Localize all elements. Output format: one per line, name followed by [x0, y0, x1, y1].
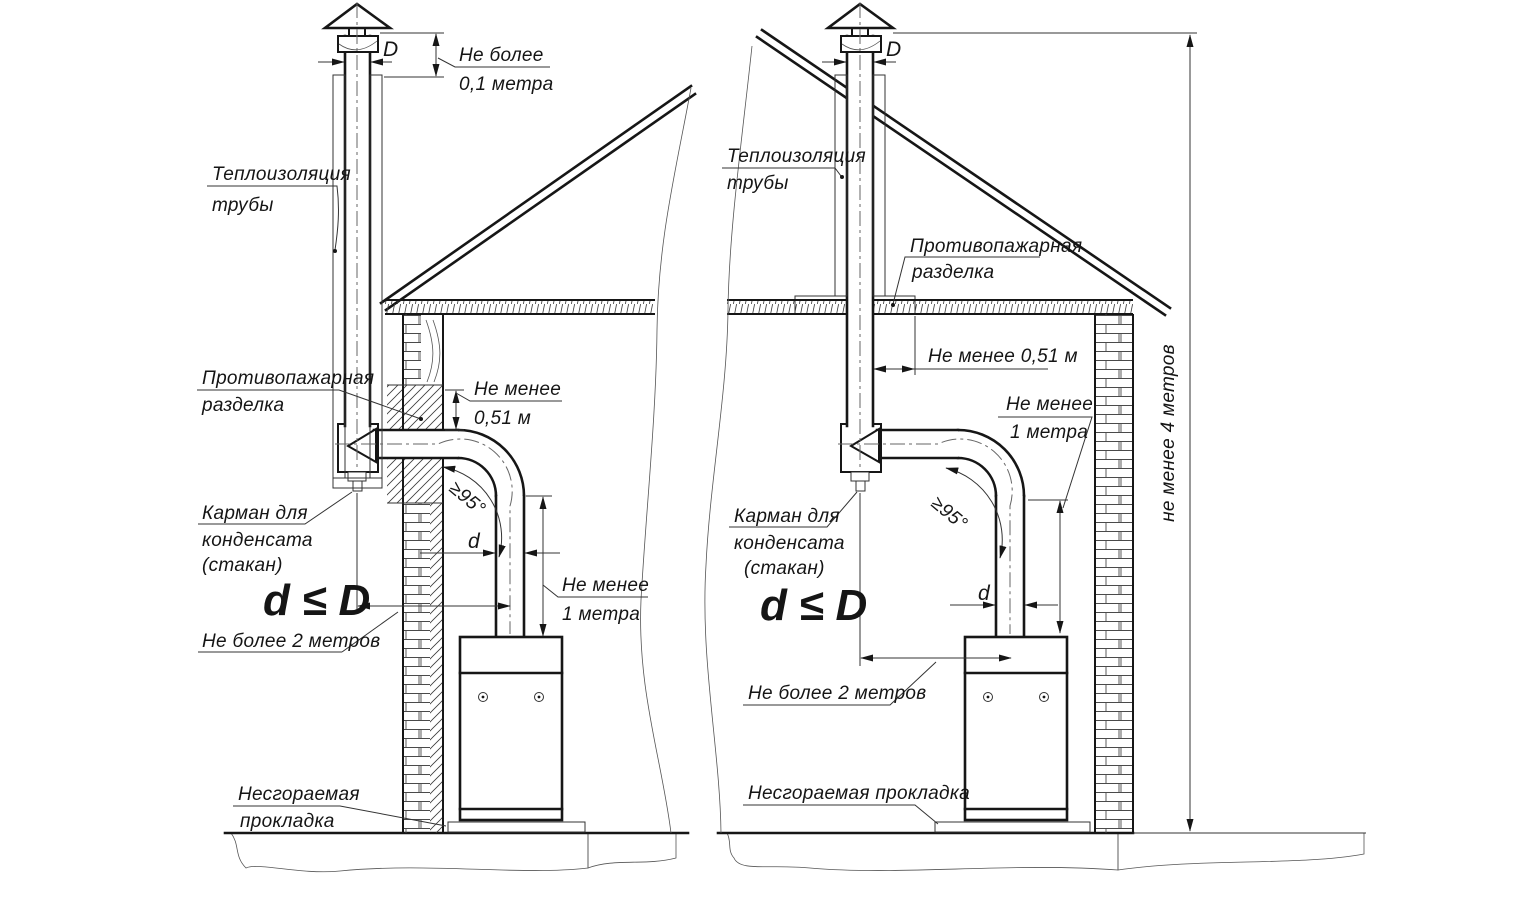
- label-min1m-1-left: Не менее: [562, 575, 649, 596]
- label-d-top-right: D: [886, 38, 901, 61]
- label-min1m-2-right: 1 метра: [1010, 422, 1088, 443]
- label-min051-2-left: 0,51 м: [474, 408, 531, 429]
- label-cutting-2-right: разделка: [911, 262, 994, 283]
- label-max2m-left: Не более 2 метров: [202, 631, 381, 652]
- label-d-top-left: D: [383, 38, 398, 61]
- ceiling-left: [385, 300, 655, 314]
- label-pocket-2-left: конденсата: [202, 530, 313, 551]
- label-max2m-right: Не более 2 метров: [748, 683, 927, 704]
- label-min4m-right: не менее 4 метров: [1158, 344, 1179, 522]
- label-gasket-2-left: прокладка: [240, 811, 335, 832]
- label-insulation-1-left: Теплоизоляция: [212, 164, 351, 185]
- left-diagram: D Не более 0,1 метра Теплоизоляция трубы…: [197, 3, 695, 872]
- label-cutting-1-left: Противопажарная: [202, 368, 374, 389]
- ceiling-right: [727, 296, 1133, 314]
- label-cap-limit-2-left: 0,1 метра: [459, 74, 554, 95]
- ground-right: [718, 833, 1366, 871]
- label-d-small-left: d: [468, 530, 481, 553]
- gasket-plate-left: [448, 822, 585, 832]
- label-cutting-1-right: Противопажарная: [910, 236, 1082, 257]
- label-pocket-1-left: Карман для: [202, 503, 308, 524]
- label-angle-left: ≥95°: [445, 478, 489, 520]
- label-d-le-D-left: d ≤ D: [263, 576, 370, 625]
- label-pocket-1-right: Карман для: [734, 506, 840, 527]
- label-min051-1-left: Не менее: [474, 379, 561, 400]
- ground-left: [225, 833, 688, 872]
- label-cutting-2-left: разделка: [201, 395, 284, 416]
- label-pocket-2-right: конденсата: [734, 533, 845, 554]
- condensate-pocket-right: [851, 472, 869, 481]
- label-d-le-D-right: d ≤ D: [760, 581, 867, 630]
- label-insulation-2-right: трубы: [727, 173, 789, 194]
- label-min1m-1-right: Не менее: [1006, 394, 1093, 415]
- label-pocket-3-left: (стакан): [202, 555, 283, 576]
- chimney-installation-diagram: D Не более 0,1 метра Теплоизоляция трубы…: [0, 0, 1532, 919]
- elbow-drop-pipe-right: [958, 430, 1024, 637]
- label-gasket-right: Несгораемая прокладка: [748, 783, 970, 804]
- label-pocket-3-right: (стакан): [744, 558, 825, 579]
- label-min1m-2-left: 1 метра: [562, 604, 640, 625]
- break-line-left: [641, 88, 691, 833]
- label-cap-limit-1-left: Не более: [459, 45, 544, 66]
- gasket-plate-right: [935, 822, 1090, 832]
- right-diagram: D Теплоизоляция трубы Противопажарная ра…: [705, 3, 1366, 871]
- furnace-left: [448, 637, 585, 832]
- wall-left: [387, 314, 443, 833]
- roof-left: [381, 86, 695, 310]
- label-min051-right: Не менее 0,51 м: [928, 346, 1078, 367]
- label-gasket-1-left: Несгораемая: [238, 784, 360, 805]
- label-insulation-1-right: Теплоизоляция: [727, 146, 866, 167]
- label-angle-right: ≥95°: [927, 493, 971, 535]
- wall-right: [1095, 314, 1133, 833]
- condensate-pocket-left: [348, 472, 366, 481]
- label-insulation-2-left: трубы: [212, 195, 274, 216]
- tee-right: [841, 424, 958, 491]
- label-d-small-right: d: [978, 582, 991, 605]
